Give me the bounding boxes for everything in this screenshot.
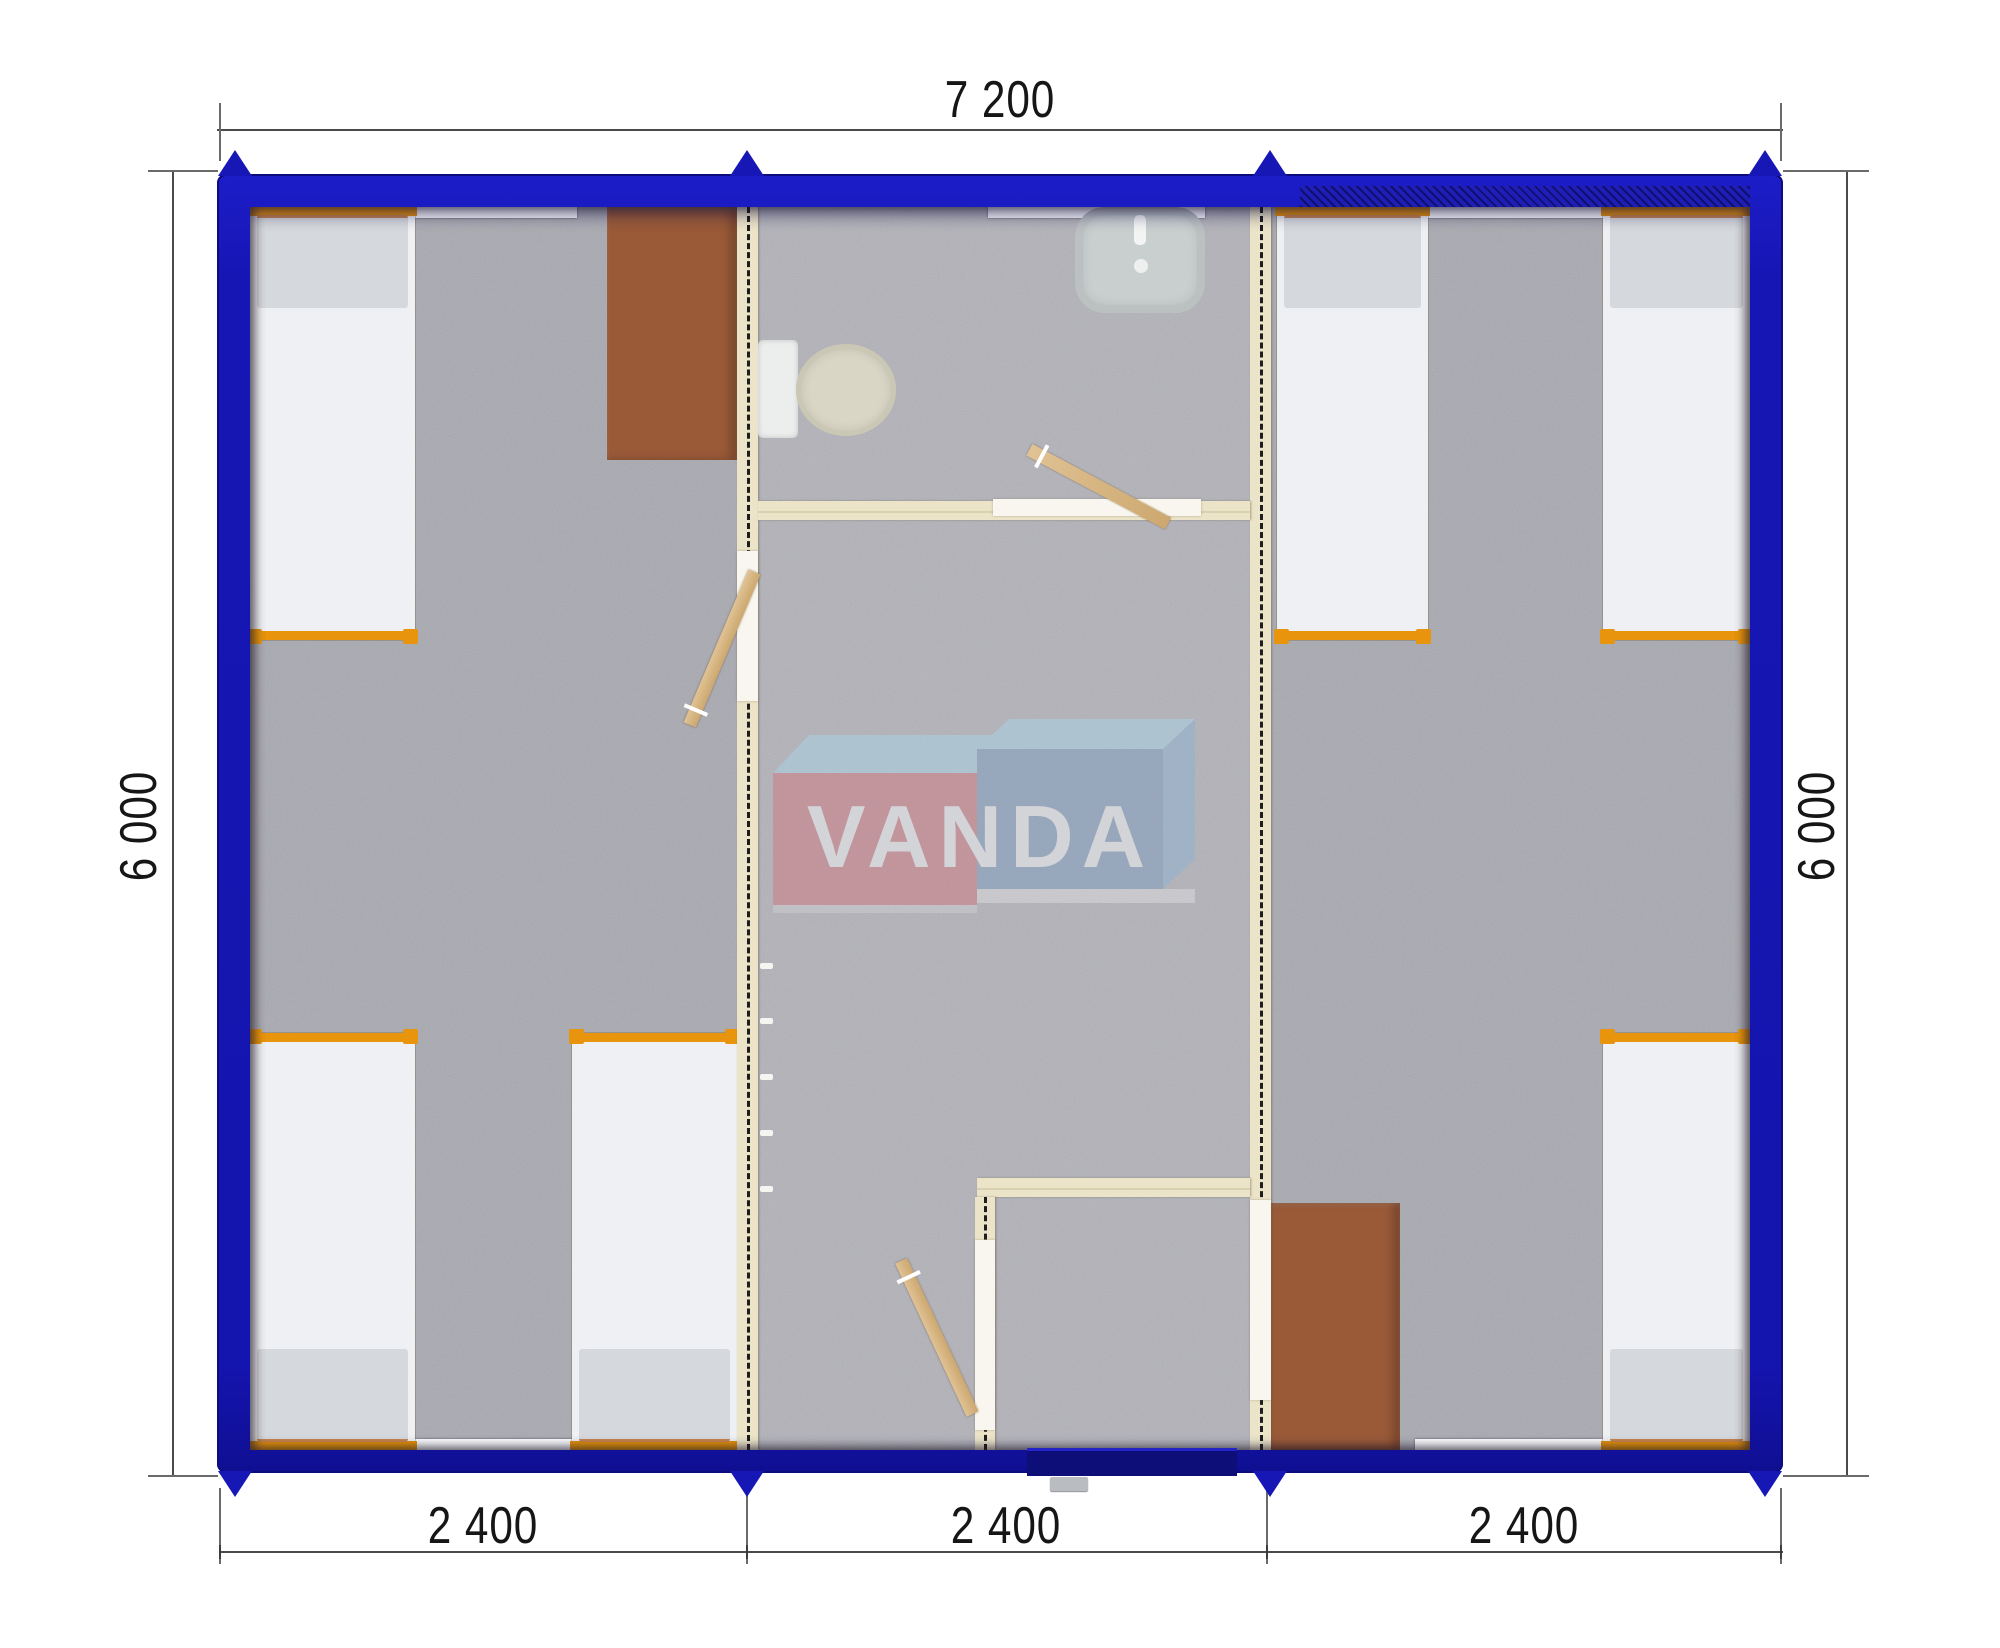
- bed-pillow: [257, 1349, 408, 1442]
- bed-frame: [574, 1033, 735, 1042]
- dimension-extension: [148, 170, 218, 172]
- dimension-label-depth-right: 6 000: [1786, 716, 1846, 937]
- coat-hook: [760, 1018, 773, 1024]
- dimension-label-module-3: 2 400: [1414, 1495, 1635, 1555]
- bed-frame: [1274, 629, 1289, 644]
- partition-wall-left: [737, 207, 758, 1450]
- bed-frame: [1605, 1033, 1748, 1042]
- coat-hook: [760, 1186, 773, 1192]
- door-opening: [993, 499, 1201, 516]
- module-joint-arrow-icon: [218, 150, 252, 176]
- logo-left-box-base: [773, 905, 977, 913]
- dimension-extension: [1783, 170, 1869, 172]
- bed-frame: [1600, 629, 1615, 644]
- logo-right-box-top: [977, 719, 1195, 749]
- module-joint-arrow-icon: [1748, 150, 1782, 176]
- logo-right-box-base: [977, 889, 1195, 903]
- desk: [607, 207, 737, 460]
- bed-frame: [569, 1029, 584, 1044]
- bed: [572, 1033, 737, 1450]
- top-wall-hatch-band: [1300, 186, 1750, 207]
- dimension-tick: [219, 1545, 221, 1559]
- bed-frame: [570, 1441, 739, 1450]
- logo-right-box-side: [1163, 719, 1195, 889]
- module-joint-arrow-icon: [730, 1471, 764, 1497]
- building-outline-wall: VANDA: [217, 174, 1783, 1473]
- dimension-extension: [148, 1475, 218, 1477]
- bed-frame: [1600, 1029, 1615, 1044]
- coat-hook: [760, 963, 773, 969]
- bed: [1603, 207, 1750, 640]
- bed-pillow: [1284, 215, 1421, 308]
- bed: [1277, 207, 1428, 640]
- module-joint-arrow-icon: [1253, 150, 1287, 176]
- sink-faucet-icon: [1134, 215, 1146, 245]
- door-handle-icon: [684, 703, 709, 716]
- bed-pillow: [1610, 215, 1743, 308]
- dimension-tick: [1266, 1545, 1268, 1559]
- module-joint-arrow-icon: [1253, 1471, 1287, 1497]
- interior-floor: VANDA: [250, 207, 1750, 1450]
- module-joint-arrow-icon: [218, 1471, 252, 1497]
- window-sill: [1415, 1439, 1610, 1450]
- coat-hook: [760, 1130, 773, 1136]
- bed-frame: [252, 631, 413, 640]
- window-sill: [1415, 207, 1612, 218]
- dimension-tick: [1780, 1545, 1782, 1559]
- door-opening: [1250, 1200, 1271, 1400]
- toilet-bowl: [796, 344, 896, 436]
- dimension-line-right: [1846, 171, 1848, 1477]
- entrance-door: [1027, 1448, 1237, 1476]
- bed-pillow: [1610, 1349, 1743, 1442]
- bed: [250, 207, 415, 640]
- dimension-extension: [1783, 1475, 1869, 1477]
- desk: [1270, 1203, 1400, 1450]
- dimension-label-module-1: 2 400: [373, 1495, 594, 1555]
- bed-frame: [250, 629, 262, 644]
- logo-text: VANDA: [807, 787, 1153, 886]
- bed-frame: [250, 1441, 417, 1450]
- dimension-label-depth-left: 6 000: [108, 716, 168, 937]
- bed-frame: [1601, 1441, 1750, 1450]
- bed: [1603, 1033, 1750, 1450]
- door-opening: [975, 1240, 995, 1430]
- bed-frame: [252, 1033, 413, 1042]
- bed-frame: [403, 629, 418, 644]
- vanda-logo-watermark: VANDA: [765, 715, 1195, 915]
- bed-frame: [1416, 629, 1431, 644]
- toilet-tank: [758, 340, 798, 438]
- bed: [250, 1033, 415, 1450]
- module-joint-arrow-icon: [730, 150, 764, 176]
- module-joint-arrow-icon: [1748, 1471, 1782, 1497]
- dimension-line-top: [217, 129, 1783, 131]
- dimension-line-left: [172, 171, 174, 1477]
- coat-hook: [760, 1074, 773, 1080]
- bed-frame: [1279, 631, 1426, 640]
- floor-plan-canvas: 7 200 2 400 2 400 2 400 6 000 6 000: [0, 0, 2000, 1648]
- dimension-label-module-2: 2 400: [896, 1495, 1117, 1555]
- entrance-step: [1050, 1477, 1088, 1491]
- vestibule-wall-horizontal: [977, 1178, 1250, 1197]
- sink-drain-icon: [1134, 259, 1148, 273]
- bed-frame: [1738, 629, 1750, 644]
- bed-frame: [1605, 631, 1748, 640]
- bed-pillow: [257, 215, 408, 308]
- bed-frame: [250, 1029, 262, 1044]
- dimension-label-overall-width: 7 200: [890, 69, 1111, 129]
- bed-frame: [1738, 1029, 1750, 1044]
- bed-frame: [403, 1029, 418, 1044]
- bed-pillow: [579, 1349, 730, 1442]
- dimension-tick: [746, 1545, 748, 1559]
